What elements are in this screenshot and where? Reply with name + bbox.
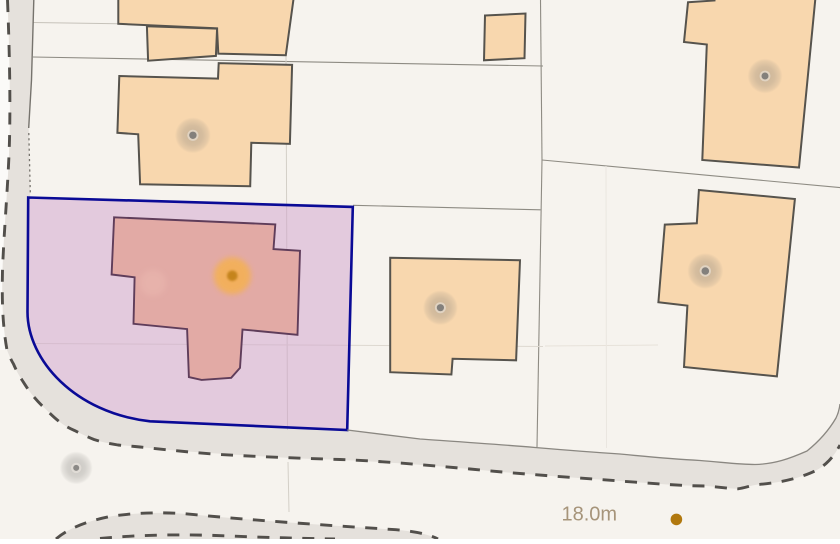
svg-text:18.0m: 18.0m xyxy=(562,504,618,526)
